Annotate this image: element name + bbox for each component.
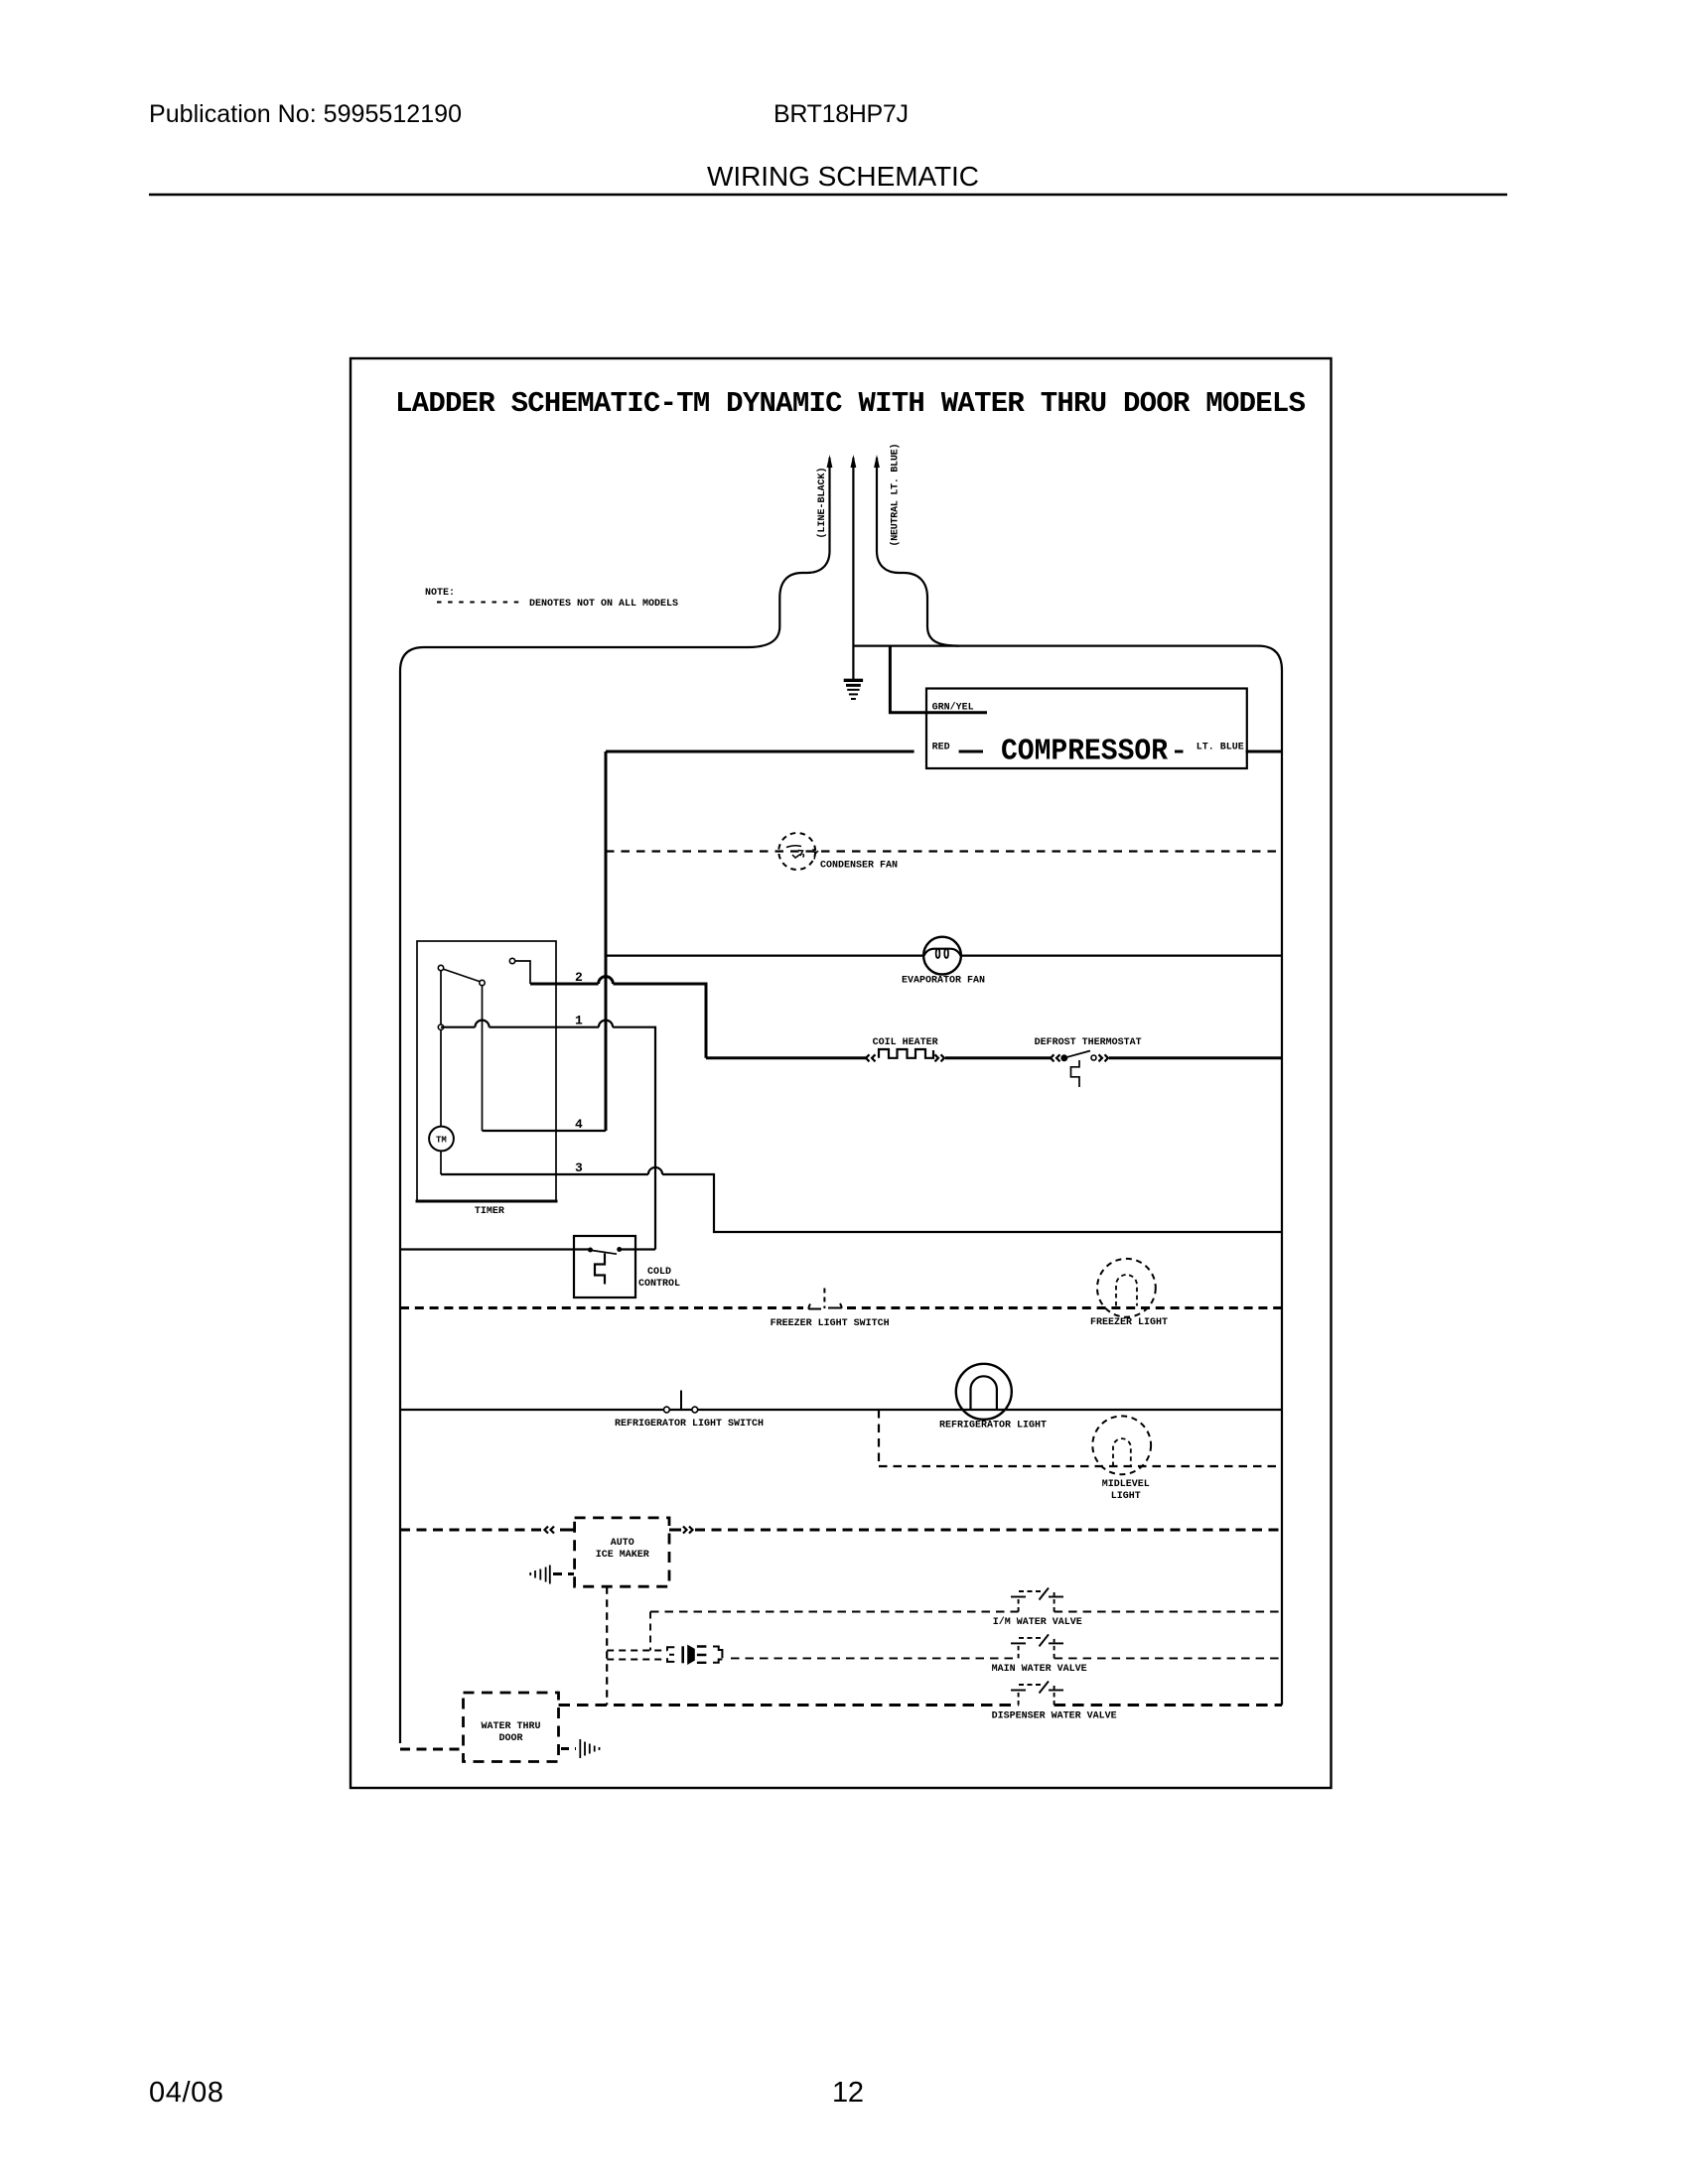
svg-text:LADDER SCHEMATIC-TM DYNAMIC WI: LADDER SCHEMATIC-TM DYNAMIC WITH WATER T… — [395, 387, 1306, 420]
svg-text:I/M WATER VALVE: I/M WATER VALVE — [993, 1616, 1082, 1628]
svg-text:COMPRESSOR: COMPRESSOR — [1001, 735, 1168, 769]
svg-text:DOOR: DOOR — [499, 1733, 523, 1744]
svg-text:NOTE:: NOTE: — [425, 588, 455, 599]
svg-text:REFRIGERATOR LIGHT SWITCH: REFRIGERATOR LIGHT SWITCH — [615, 1419, 764, 1430]
svg-text:MAIN WATER VALVE: MAIN WATER VALVE — [992, 1664, 1087, 1675]
svg-text:LIGHT: LIGHT — [1111, 1491, 1141, 1502]
svg-text:LT. BLUE: LT. BLUE — [1196, 743, 1244, 753]
svg-text:Publication No: 5995512190: Publication No: 5995512190 — [149, 100, 462, 128]
svg-text:AUTO: AUTO — [611, 1538, 634, 1549]
svg-text:2: 2 — [575, 970, 583, 985]
svg-text:FREEZER LIGHT SWITCH: FREEZER LIGHT SWITCH — [771, 1318, 890, 1329]
svg-text:DISPENSER WATER VALVE: DISPENSER WATER VALVE — [992, 1711, 1117, 1722]
svg-text:(LINE-BLACK): (LINE-BLACK) — [816, 468, 828, 539]
svg-text:CONTROL: CONTROL — [638, 1279, 680, 1290]
svg-text:3: 3 — [575, 1160, 583, 1175]
svg-text:TIMER: TIMER — [475, 1206, 504, 1217]
svg-text:REFRIGERATOR LIGHT: REFRIGERATOR LIGHT — [939, 1421, 1047, 1432]
svg-text:CONDENSER FAN: CONDENSER FAN — [820, 861, 898, 872]
svg-text:BRT18HP7J: BRT18HP7J — [774, 100, 909, 128]
svg-text:DENOTES NOT ON ALL MODELS: DENOTES NOT ON ALL MODELS — [529, 599, 678, 610]
svg-text:ICE MAKER: ICE MAKER — [596, 1550, 649, 1561]
svg-text:COLD: COLD — [647, 1267, 671, 1278]
svg-text:04/08: 04/08 — [149, 2077, 223, 2109]
svg-text:RED: RED — [932, 743, 950, 753]
svg-text:GRN/YEL: GRN/YEL — [932, 702, 974, 714]
svg-text:12: 12 — [832, 2077, 864, 2109]
svg-text:COIL HEATER: COIL HEATER — [873, 1037, 938, 1048]
svg-text:MIDLEVEL: MIDLEVEL — [1102, 1479, 1150, 1490]
svg-text:WATER THRU: WATER THRU — [482, 1721, 541, 1732]
svg-text:FREEZER LIGHT: FREEZER LIGHT — [1090, 1317, 1168, 1328]
svg-text:(NEUTRAL LT. BLUE): (NEUTRAL LT. BLUE) — [890, 444, 902, 547]
svg-text:1: 1 — [575, 1014, 583, 1028]
svg-text:DEFROST THERMOSTAT: DEFROST THERMOSTAT — [1035, 1037, 1142, 1048]
svg-text:4: 4 — [575, 1117, 583, 1132]
svg-text:WIRING SCHEMATIC: WIRING SCHEMATIC — [707, 161, 979, 192]
svg-text:EVAPORATOR FAN: EVAPORATOR FAN — [902, 976, 985, 987]
svg-text:TM: TM — [436, 1136, 447, 1146]
